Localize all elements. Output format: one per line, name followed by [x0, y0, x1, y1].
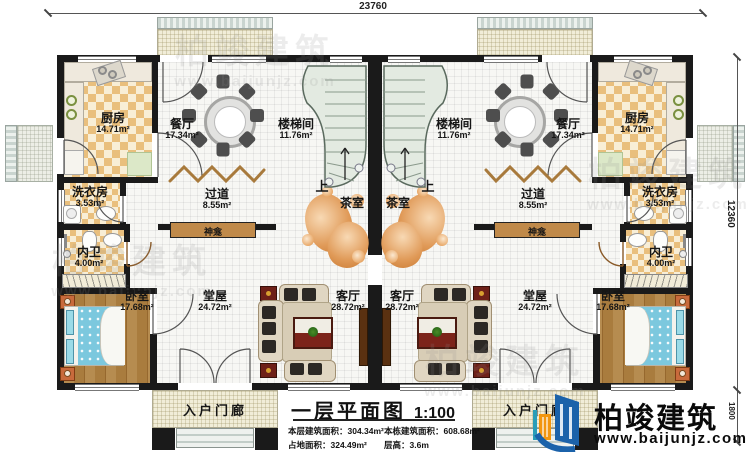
room-label-hall-right: 堂屋24.72m² — [518, 290, 552, 313]
room-label-corridor-right: 过道8.55m² — [519, 188, 548, 211]
room-label-kitchen-right: 厨房14.71m² — [620, 112, 654, 135]
stat-building-area: 本栋建筑面积：608.68m² — [384, 425, 480, 437]
door-swing — [599, 242, 623, 266]
room-label-stairwell-left: 楼梯间11.76m² — [278, 118, 314, 141]
dimension-porch-depth: 1800 — [727, 402, 736, 420]
room-label-hall-left: 堂屋24.72m² — [198, 290, 232, 313]
room-label-living-right: 客厅28.72m² — [385, 290, 419, 313]
brand-website: www.baijunjz.com — [594, 430, 747, 447]
room-label-dining-right: 餐厅17.34m² — [551, 118, 585, 141]
room-label-laundry-right: 洗衣房3.53m² — [642, 186, 678, 209]
dimension-top-width: 23760 — [359, 1, 387, 12]
room-label-shrine-left: 神龛 — [204, 225, 222, 238]
dimension-line-top — [48, 13, 704, 14]
room-label-corridor-left: 过道8.55m² — [203, 188, 232, 211]
door-swing — [652, 140, 686, 174]
room-label-kitchen-left: 厨房14.71m² — [96, 112, 130, 135]
porch-label-left: 入户门廊 — [183, 400, 247, 419]
logo-window-stripe — [569, 407, 572, 439]
room-label-tea-left: 茶室 — [340, 194, 364, 211]
room-label-bathroom-right: 内卫4.00m² — [647, 246, 676, 269]
logo-block-stripe — [546, 417, 548, 437]
room-label-shrine-right: 神龛 — [528, 225, 546, 238]
room-label-laundry-left: 洗衣房3.53m² — [72, 186, 108, 209]
corridor-screen-zigzag — [486, 167, 580, 181]
floor-plan-page: 23760 12360 1800 厨房14.71m² 餐厅17.34m² 楼梯间… — [0, 0, 750, 455]
dimension-line-right — [737, 57, 738, 390]
room-label-tea-right: 茶室 — [386, 194, 410, 211]
room-label-stairwell-right: 楼梯间11.76m² — [436, 118, 472, 141]
door-swing — [557, 294, 597, 334]
room-label-bedroom-left: 卧室17.68m² — [120, 290, 154, 313]
logo-window-stripe — [560, 404, 563, 436]
logo-tower — [555, 394, 579, 446]
stat-footprint-area: 占地面积：324.49m² — [288, 439, 367, 451]
logo-block-stripe — [542, 417, 544, 437]
room-label-dining-left: 餐厅17.34m² — [165, 118, 199, 141]
stair-up-label-left: 上 — [315, 176, 328, 195]
stat-floor-height: 层高：3.6m — [384, 439, 429, 451]
stair-post-icon — [387, 164, 395, 172]
brand-logo-icon — [533, 390, 589, 452]
stat-floor-area: 本层建筑面积：304.34m² — [288, 425, 384, 437]
room-label-bathroom-left: 内卫4.00m² — [75, 246, 104, 269]
unit-graphics-right — [0, 0, 750, 455]
room-label-living-left: 客厅28.72m² — [331, 290, 365, 313]
title-underline — [293, 419, 455, 421]
line-art-stairs-and-doors — [0, 0, 750, 455]
entry-double-door-swing — [500, 349, 570, 383]
dimension-right-height: 12360 — [725, 200, 736, 228]
door-swing — [547, 62, 587, 102]
room-label-bedroom-right: 卧室17.68m² — [596, 290, 630, 313]
stair-up-label-right: 上 — [421, 176, 434, 195]
